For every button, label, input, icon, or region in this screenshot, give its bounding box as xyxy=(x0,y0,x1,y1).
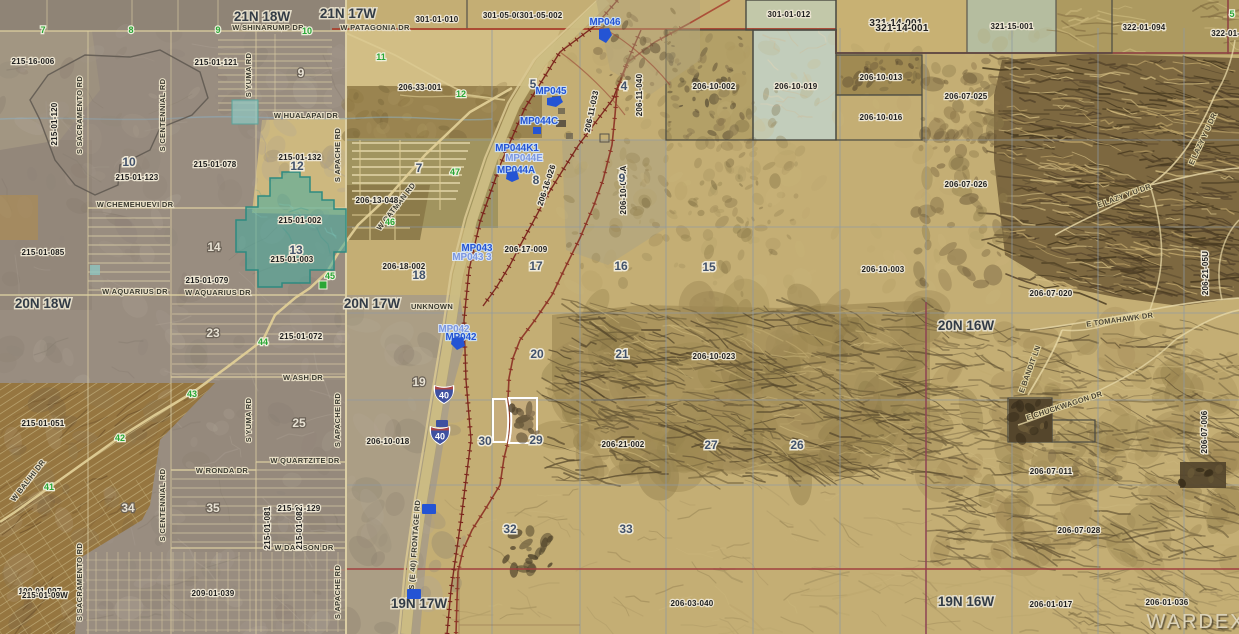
svg-text:15: 15 xyxy=(702,260,716,274)
svg-text:21N 18W: 21N 18W xyxy=(234,9,291,24)
svg-text:215-01-072: 215-01-072 xyxy=(280,332,323,341)
svg-text:8: 8 xyxy=(128,25,133,35)
svg-text:215-01-002: 215-01-002 xyxy=(279,216,322,225)
svg-text:206-01-036: 206-01-036 xyxy=(1146,598,1189,607)
svg-text:32: 32 xyxy=(503,522,517,536)
svg-text:206-07-026: 206-07-026 xyxy=(945,180,988,189)
svg-text:W SHINARUMP DR: W SHINARUMP DR xyxy=(232,23,304,32)
svg-text:4: 4 xyxy=(621,79,628,93)
svg-text:215-01-085: 215-01-085 xyxy=(22,248,65,257)
svg-text:12: 12 xyxy=(456,89,466,99)
svg-text:206-13-048: 206-13-048 xyxy=(356,196,399,205)
svg-text:9: 9 xyxy=(215,25,220,35)
svg-text:26: 26 xyxy=(790,438,804,452)
svg-text:322-01-094: 322-01-094 xyxy=(1123,23,1166,32)
svg-text:W RONDA DR: W RONDA DR xyxy=(196,466,249,475)
svg-text:20: 20 xyxy=(530,347,544,361)
svg-text:206-07-028: 206-07-028 xyxy=(1058,526,1101,535)
svg-text:S SACRAMENTO RD: S SACRAMENTO RD xyxy=(75,543,84,621)
svg-text:W AQUARIUS DR: W AQUARIUS DR xyxy=(185,288,251,297)
svg-text:215-01-120: 215-01-120 xyxy=(50,102,59,145)
svg-text:20N 17W: 20N 17W xyxy=(344,296,401,311)
svg-text:W PATAGONIA DR: W PATAGONIA DR xyxy=(340,23,410,32)
svg-text:WARDEX: WARDEX xyxy=(1146,611,1239,633)
svg-text:11: 11 xyxy=(376,52,386,62)
svg-text:12: 12 xyxy=(290,159,304,173)
svg-text:21: 21 xyxy=(615,347,629,361)
svg-text:215-01-079: 215-01-079 xyxy=(186,276,229,285)
svg-text:S YUMA RD: S YUMA RD xyxy=(244,53,253,98)
svg-text:206-07-011: 206-07-011 xyxy=(1030,467,1073,476)
svg-text:16: 16 xyxy=(614,259,628,273)
svg-text:321-14-001: 321-14-001 xyxy=(875,23,928,34)
svg-text:W QUARTZITE DR: W QUARTZITE DR xyxy=(270,456,339,465)
svg-text:301-05-002: 301-05-002 xyxy=(520,11,563,20)
svg-text:34: 34 xyxy=(121,501,135,515)
svg-text:206-01-017: 206-01-017 xyxy=(1030,600,1073,609)
svg-text:7: 7 xyxy=(416,161,423,175)
svg-text:206-07-020: 206-07-020 xyxy=(1030,289,1073,298)
svg-text:10: 10 xyxy=(302,26,312,36)
svg-text:206-17-009: 206-17-009 xyxy=(505,245,548,254)
svg-text:30: 30 xyxy=(478,434,492,448)
svg-text:43: 43 xyxy=(187,389,197,399)
svg-text:206-21-05U: 206-21-05U xyxy=(1201,251,1210,295)
svg-text:14: 14 xyxy=(207,240,221,254)
svg-text:21N 17W: 21N 17W xyxy=(320,6,377,21)
svg-text:322-01-0: 322-01-0 xyxy=(1211,29,1239,38)
svg-text:W HUALAPAI DR: W HUALAPAI DR xyxy=(274,111,338,120)
svg-text:18: 18 xyxy=(412,268,426,282)
svg-text:19N 16W: 19N 16W xyxy=(938,594,995,609)
svg-text:301-01-012: 301-01-012 xyxy=(768,10,811,19)
svg-text:13: 13 xyxy=(289,243,303,257)
svg-text:206-07-025: 206-07-025 xyxy=(945,92,988,101)
svg-text:35: 35 xyxy=(206,501,220,515)
svg-text:46: 46 xyxy=(385,217,395,227)
svg-text:206-03-040: 206-03-040 xyxy=(671,599,714,608)
svg-text:206-21-002: 206-21-002 xyxy=(602,440,645,449)
svg-text:20N 18W: 20N 18W xyxy=(15,296,72,311)
svg-text:206-10-016: 206-10-016 xyxy=(860,113,903,122)
svg-text:206-10-023: 206-10-023 xyxy=(693,352,736,361)
svg-text:S CENTENNIAL RD: S CENTENNIAL RD xyxy=(158,468,167,541)
svg-text:S APACHE RD: S APACHE RD xyxy=(333,128,342,182)
svg-text:47: 47 xyxy=(450,167,460,177)
svg-text:W DAWSON DR: W DAWSON DR xyxy=(274,543,333,552)
svg-text:7: 7 xyxy=(40,25,45,35)
svg-text:206-10-013: 206-10-013 xyxy=(860,73,903,82)
svg-text:301-01-010: 301-01-010 xyxy=(416,15,459,24)
svg-text:S YUMA RD: S YUMA RD xyxy=(244,398,253,443)
svg-text:10: 10 xyxy=(122,155,136,169)
svg-text:206-10-002: 206-10-002 xyxy=(693,82,736,91)
svg-text:W CHEMEHUEVI DR: W CHEMEHUEVI DR xyxy=(97,200,174,209)
svg-text:206-07-006: 206-07-006 xyxy=(1200,410,1209,453)
svg-text:MP044E: MP044E xyxy=(505,153,543,164)
svg-text:209-01-039: 209-01-039 xyxy=(192,589,235,598)
svg-text:45: 45 xyxy=(325,271,335,281)
svg-text:215-01-051: 215-01-051 xyxy=(22,419,65,428)
svg-text:25: 25 xyxy=(292,416,306,430)
svg-text:20N 16W: 20N 16W xyxy=(938,318,995,333)
svg-text:W AQUARIUS DR: W AQUARIUS DR xyxy=(102,287,168,296)
svg-text:UNKNOWN: UNKNOWN xyxy=(411,302,453,311)
svg-text:27: 27 xyxy=(704,438,718,452)
svg-text:S APACHE RD: S APACHE RD xyxy=(333,393,342,447)
svg-text:MP044C: MP044C xyxy=(520,116,558,127)
svg-text:42: 42 xyxy=(115,433,125,443)
svg-text:23: 23 xyxy=(206,326,220,340)
svg-text:41: 41 xyxy=(44,482,54,492)
svg-text:W ASH DR: W ASH DR xyxy=(283,373,323,382)
svg-text:29: 29 xyxy=(529,433,543,447)
svg-text:215-01-078: 215-01-078 xyxy=(194,160,237,169)
svg-text:206-10-019: 206-10-019 xyxy=(775,82,818,91)
svg-text:S CENTENNIAL RD: S CENTENNIAL RD xyxy=(158,78,167,151)
svg-text:S APACHE RD: S APACHE RD xyxy=(333,565,342,619)
svg-text:9: 9 xyxy=(298,66,305,80)
svg-text:44: 44 xyxy=(258,337,268,347)
svg-text:215-01-121: 215-01-121 xyxy=(195,58,238,67)
svg-text:MP043 3: MP043 3 xyxy=(452,252,492,263)
svg-text:17: 17 xyxy=(529,259,543,273)
svg-text:206-10-018: 206-10-018 xyxy=(367,437,410,446)
svg-text:206-11-040: 206-11-040 xyxy=(635,73,644,116)
svg-text:19: 19 xyxy=(412,375,426,389)
svg-text:215-01-082: 215-01-082 xyxy=(295,506,304,549)
svg-text:215-01-09W: 215-01-09W xyxy=(22,591,68,600)
svg-text:321-15-001: 321-15-001 xyxy=(991,22,1034,31)
svg-text:206-33-001: 206-33-001 xyxy=(399,83,442,92)
svg-text:215-01-081: 215-01-081 xyxy=(263,506,272,549)
svg-text:5: 5 xyxy=(1229,9,1234,19)
svg-text:40: 40 xyxy=(435,431,445,441)
svg-text:S SACRAMENTO RD: S SACRAMENTO RD xyxy=(75,76,84,154)
svg-text:33: 33 xyxy=(619,522,633,536)
svg-text:MP045: MP045 xyxy=(535,86,567,97)
svg-text:9: 9 xyxy=(619,171,626,185)
svg-text:MP046: MP046 xyxy=(589,17,621,28)
svg-text:215-01-123: 215-01-123 xyxy=(116,173,159,182)
svg-text:215-16-006: 215-16-006 xyxy=(12,57,55,66)
svg-text:40: 40 xyxy=(439,390,449,400)
svg-text:301-05-00: 301-05-00 xyxy=(483,11,522,20)
svg-text:206-10-003: 206-10-003 xyxy=(862,265,905,274)
